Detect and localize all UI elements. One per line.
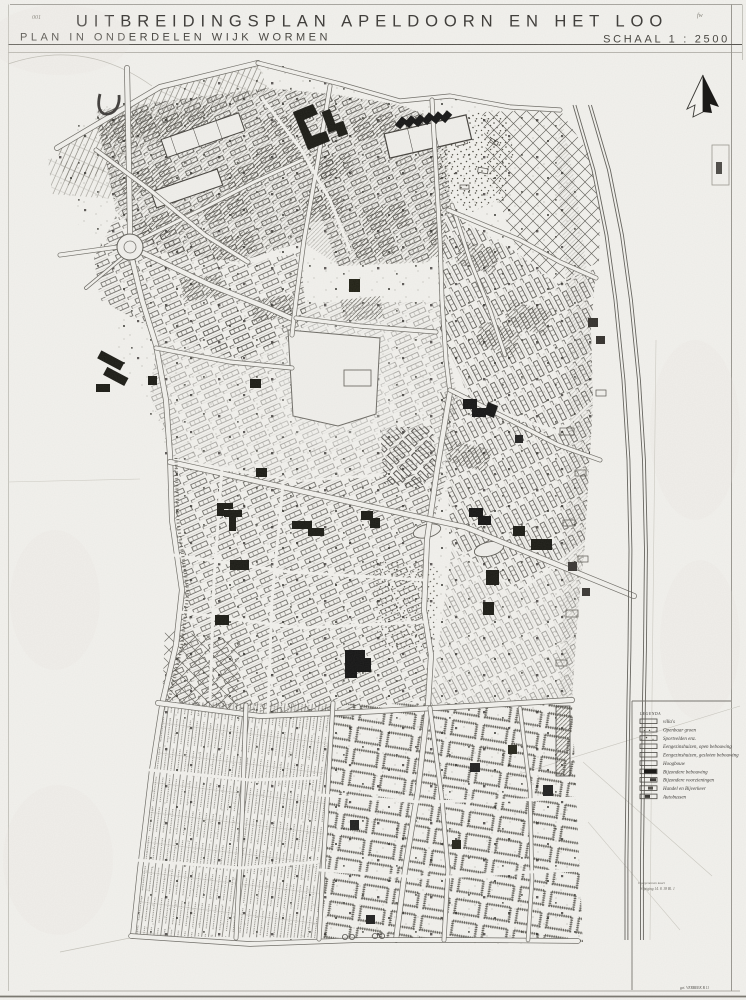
svg-text:Sportvelden enz.: Sportvelden enz. — [663, 737, 696, 742]
svg-text:LEGENDA: LEGENDA — [639, 712, 661, 716]
svg-text:Openbaar groen: Openbaar groen — [663, 729, 697, 734]
svg-text:Autobussen: Autobussen — [662, 795, 687, 800]
svg-text:get. VERBEEK B 11: get. VERBEEK B 11 — [680, 986, 709, 990]
svg-text:Eengezinshuizen, gesloten bebo: Eengezinshuizen, gesloten bebouwing — [662, 754, 739, 759]
svg-text:Overgenomen kaart: Overgenomen kaart — [638, 881, 666, 885]
svg-text:Wijziging 14. 8. 38 Bl. 1: Wijziging 14. 8. 38 Bl. 1 — [640, 887, 675, 891]
svg-text:Bijzondere bebouwing: Bijzondere bebouwing — [663, 770, 708, 775]
svg-text:Hoogbouw: Hoogbouw — [662, 762, 686, 767]
svg-text:villa's: villa's — [663, 720, 675, 725]
svg-text:Bijzondere voorzieningen: Bijzondere voorzieningen — [663, 779, 715, 784]
svg-text:Handel en Bijverkeer: Handel en Bijverkeer — [662, 787, 706, 792]
svg-text:Eengezinshuizen, open bebouwin: Eengezinshuizen, open bebouwing — [662, 745, 732, 750]
